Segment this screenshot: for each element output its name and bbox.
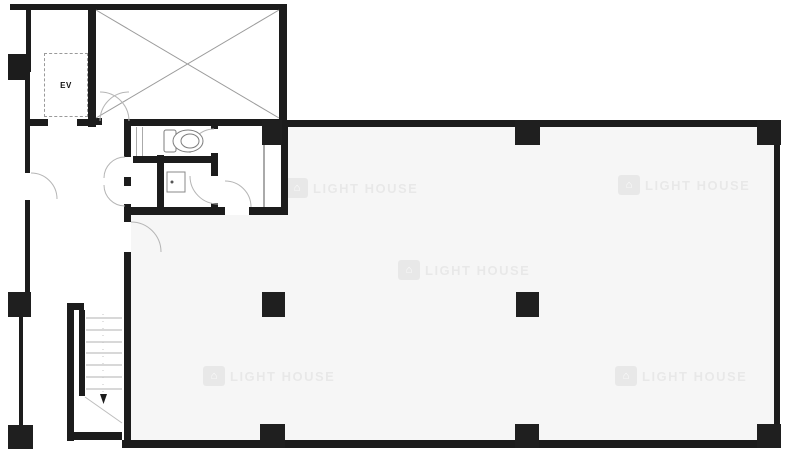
stair-down-arrow-icon	[100, 394, 107, 404]
plan-detail-overlay	[0, 0, 787, 463]
floor-plan: ⌂ LIGHT HOUSE ⌂ LIGHT HOUSE ⌂ LIGHT HOUS…	[0, 0, 787, 463]
x-cross-shaft-icon	[96, 10, 279, 118]
toilet-fixture-icon	[164, 130, 203, 152]
door-arc	[190, 176, 218, 204]
sink-fixture-icon	[167, 172, 185, 192]
door-arc	[31, 173, 57, 199]
door-arc	[104, 185, 125, 206]
door-arc	[225, 181, 251, 207]
door-arc	[131, 222, 161, 252]
door-arc	[104, 157, 125, 178]
stair-treads	[86, 318, 122, 389]
door-arcs	[31, 92, 251, 252]
